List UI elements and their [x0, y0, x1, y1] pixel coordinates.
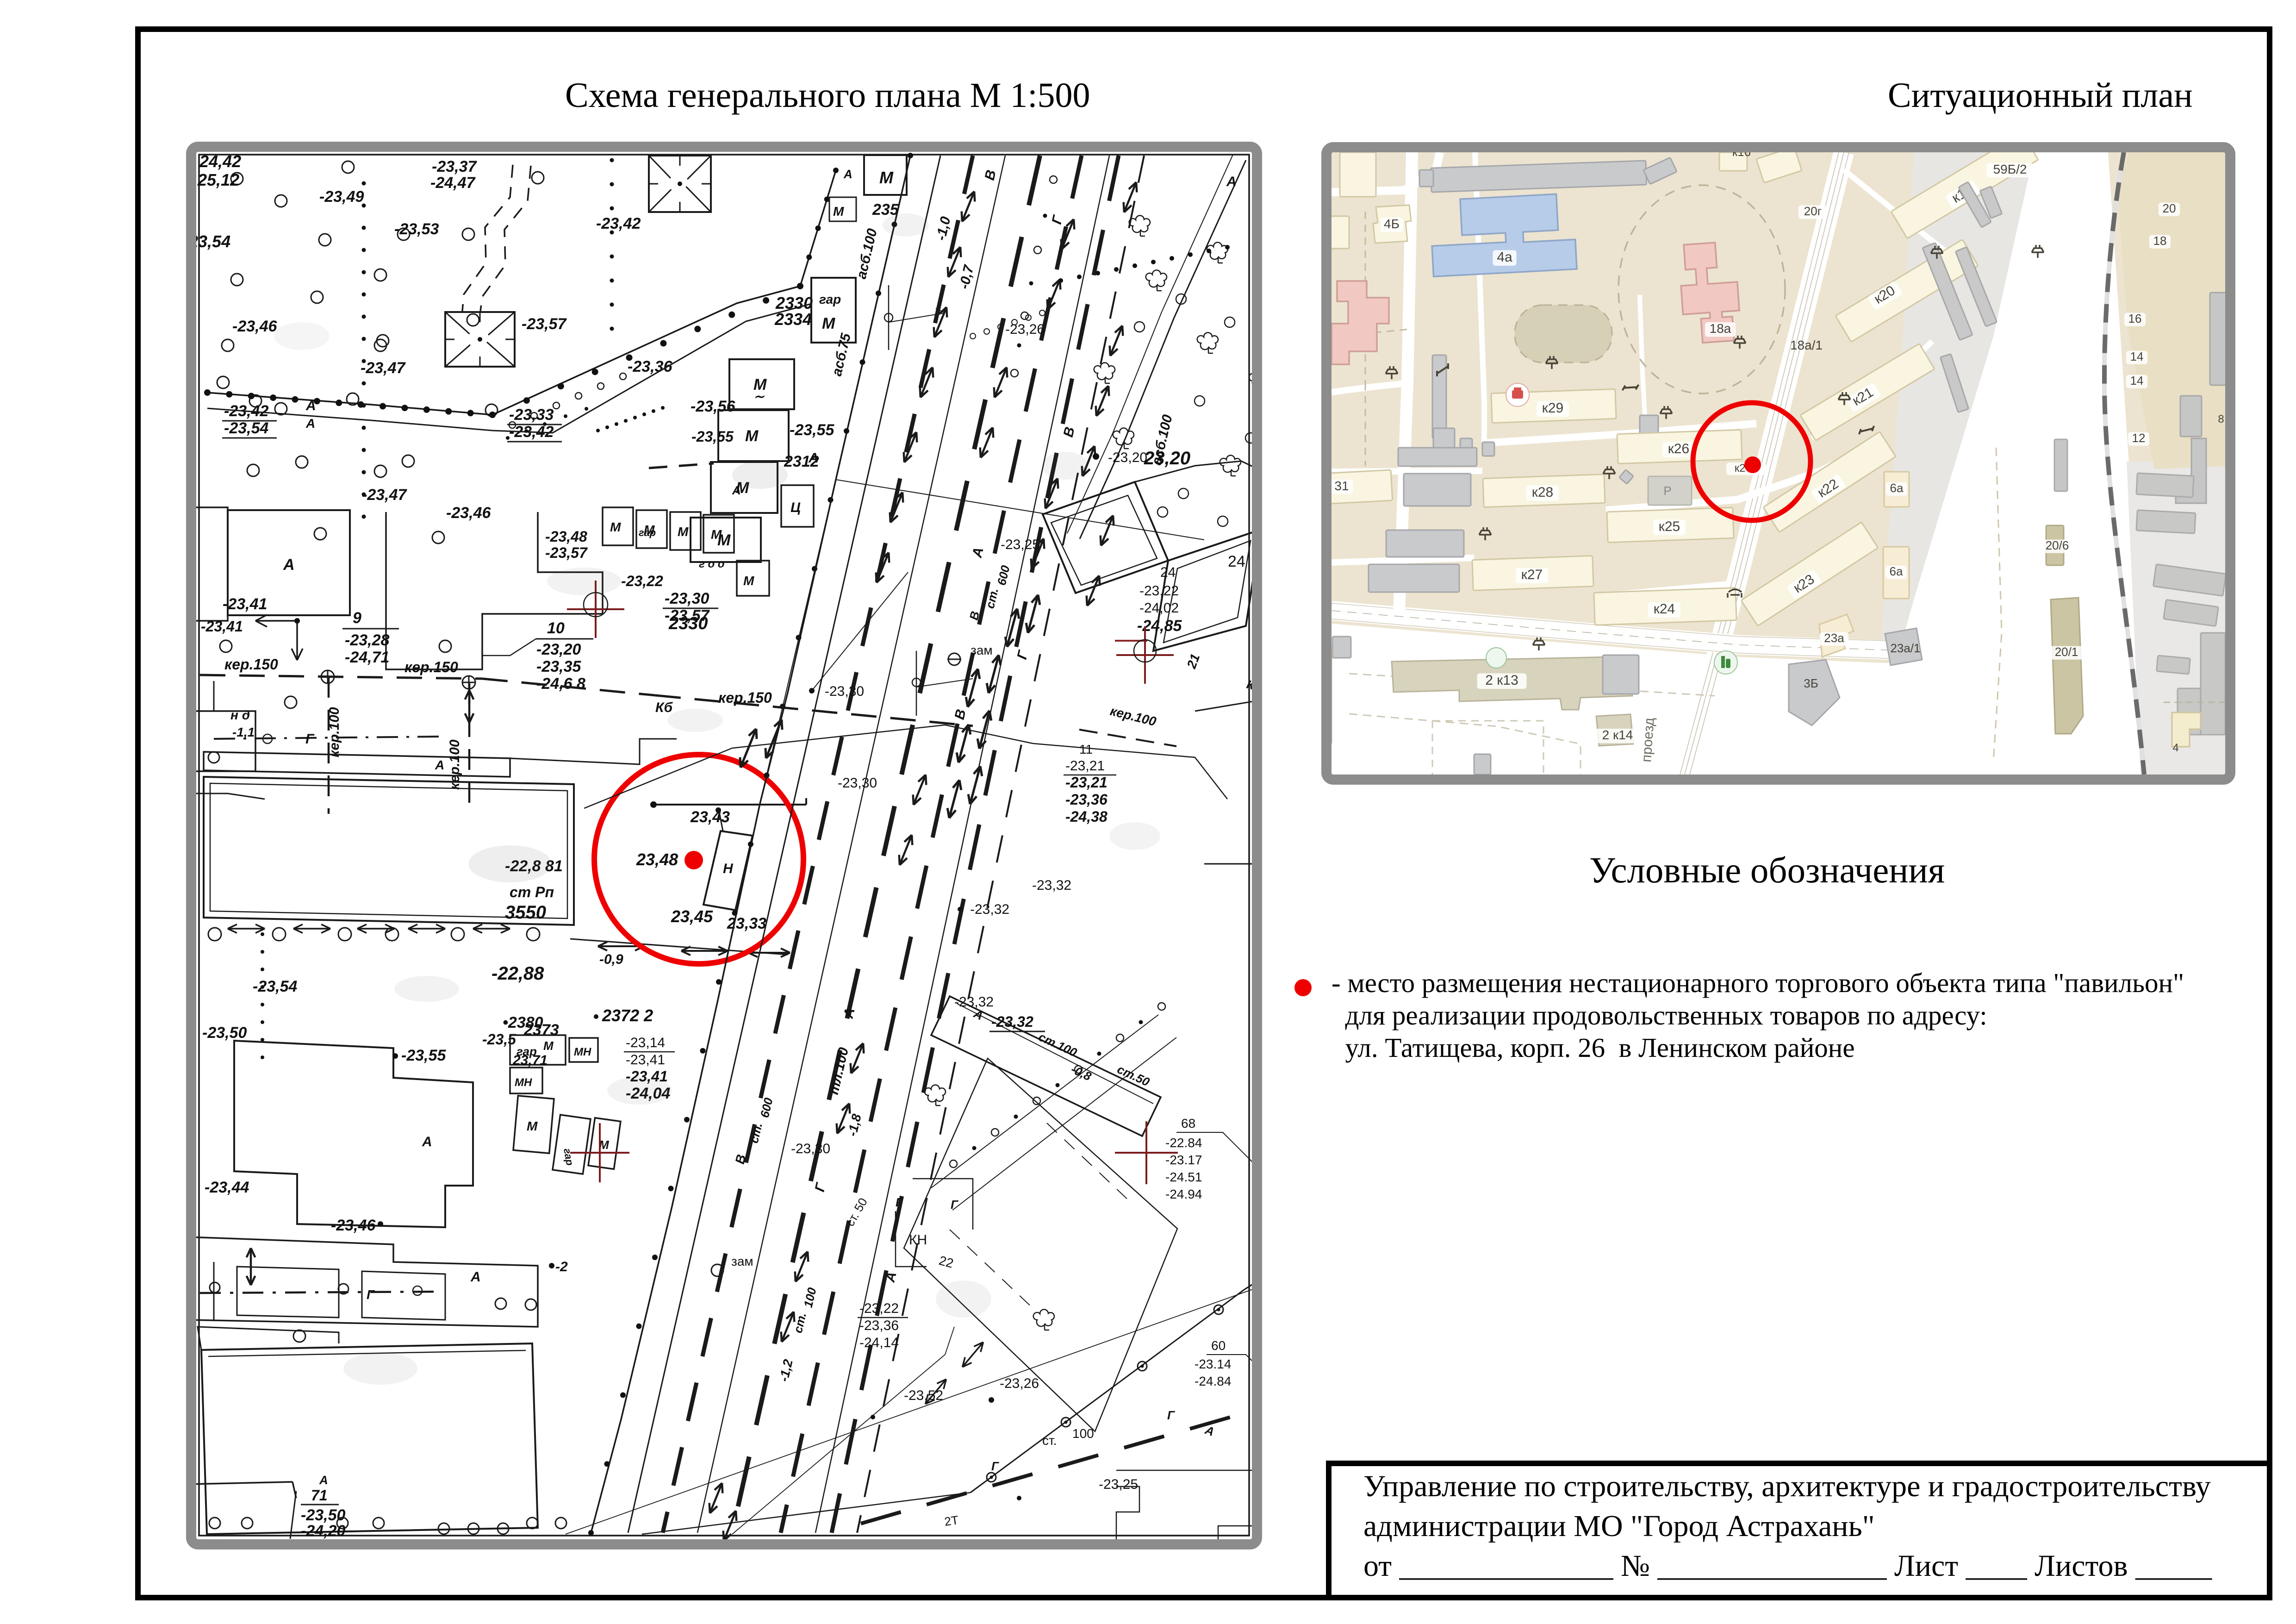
svg-text:31: 31 [1334, 479, 1349, 493]
svg-text:4Б: 4Б [1384, 217, 1400, 231]
svg-text:А: А [1226, 174, 1237, 189]
svg-text:гар: гар [561, 1148, 576, 1167]
svg-text:М: М [743, 574, 754, 588]
svg-text:-24.51: -24.51 [1165, 1170, 1202, 1184]
svg-text:г о о: г о о [699, 558, 724, 570]
svg-text:2330: 2330 [668, 614, 708, 633]
svg-text:-23,49: -23,49 [319, 188, 364, 206]
svg-text:23,45: 23,45 [671, 907, 713, 926]
svg-text:-23,32: -23,32 [954, 994, 994, 1010]
svg-text:к25: к25 [1659, 519, 1680, 534]
svg-text:24,42: 24,42 [199, 152, 241, 171]
svg-text:А: А [843, 167, 852, 181]
svg-text:Г: Г [896, 1195, 903, 1209]
svg-text:Г: Г [991, 1459, 999, 1473]
svg-text:М: М [833, 204, 844, 219]
svg-text:-23,30: -23,30 [665, 590, 709, 607]
svg-text:-24.94: -24.94 [1165, 1187, 1202, 1201]
svg-text:Г: Г [1049, 213, 1066, 226]
svg-text:А: А [435, 758, 444, 772]
svg-text:23,43: 23,43 [690, 808, 730, 826]
svg-text:-24,47: -24,47 [430, 174, 476, 192]
svg-text:-23,54: -23,54 [253, 978, 297, 995]
svg-text:-23,55: -23,55 [401, 1047, 446, 1064]
svg-text:В: В [952, 708, 969, 721]
svg-text:-23,42: -23,42 [596, 215, 641, 232]
svg-text:14: 14 [2130, 350, 2144, 363]
svg-text:-23,22: -23,22 [1139, 583, 1179, 599]
svg-text:А: А [470, 1269, 481, 1285]
svg-text:-1,2: -1,2 [777, 1358, 796, 1383]
svg-text:кер.150: кер.150 [404, 659, 458, 675]
svg-text:-23,55: -23,55 [790, 421, 834, 439]
svg-text:24: 24 [1160, 565, 1176, 580]
svg-text:10: 10 [547, 619, 565, 637]
svg-text:59Б/2: 59Б/2 [1993, 162, 2027, 176]
svg-text:М: М [543, 1039, 554, 1053]
svg-text:11: 11 [1079, 742, 1093, 756]
svg-text:-23,36: -23,36 [1065, 791, 1108, 808]
svg-text:-23,57: -23,57 [545, 544, 588, 561]
svg-text:-23,46: -23,46 [331, 1217, 376, 1234]
svg-text:-0,9: -0,9 [599, 952, 623, 967]
svg-text:кер.100: кер.100 [1109, 704, 1158, 729]
svg-text:зам: зам [971, 643, 993, 657]
svg-text:-23,41: -23,41 [626, 1052, 665, 1068]
svg-text:М: М [678, 525, 689, 539]
svg-text:ст.: ст. [1042, 1433, 1057, 1448]
svg-text:зам: зам [731, 1254, 753, 1268]
svg-text:Г: Г [951, 1198, 958, 1212]
svg-text:к27: к27 [1521, 567, 1543, 582]
svg-text:23,48: 23,48 [636, 850, 678, 869]
svg-text:А: А [808, 450, 819, 466]
svg-text:-1,1: -1,1 [232, 725, 255, 739]
svg-text:-22,88: -22,88 [492, 963, 544, 984]
svg-text:3550: 3550 [505, 902, 546, 923]
svg-text:23а: 23а [1824, 631, 1844, 645]
svg-text:МН: МН [515, 1076, 532, 1089]
svg-text:ст.: ст. [747, 1121, 765, 1144]
svg-text:А: А [422, 1134, 432, 1149]
svg-text:М: М [610, 520, 621, 534]
svg-text:-23,25: -23,25 [1001, 537, 1040, 552]
svg-text:-23,21: -23,21 [1065, 758, 1105, 774]
svg-text:-23,50: -23,50 [202, 1024, 247, 1042]
svg-text:к28: к28 [1532, 485, 1554, 500]
svg-text:60: 60 [1211, 1338, 1226, 1353]
svg-text:-23,22: -23,22 [621, 573, 663, 589]
svg-text:-0,7: -0,7 [957, 263, 977, 291]
svg-text:кер.150: кер.150 [224, 656, 278, 673]
svg-text:КН: КН [909, 1232, 927, 1248]
svg-text:4а: 4а [1497, 250, 1512, 265]
svg-text:-23,48: -23,48 [545, 528, 587, 545]
svg-text:-23,26: -23,26 [1000, 1376, 1039, 1391]
svg-text:-23,30: -23,30 [791, 1141, 830, 1156]
svg-text:А: А [840, 1006, 858, 1020]
svg-text:ст. 50: ст. 50 [843, 1195, 870, 1229]
svg-text:-24,38: -24,38 [1065, 808, 1108, 825]
svg-text:2 к14: 2 к14 [1602, 728, 1633, 742]
svg-text:Кб: Кб [655, 700, 673, 715]
svg-text:2Т: 2Т [944, 1513, 959, 1529]
svg-text:25,12: 25,12 [197, 170, 239, 189]
svg-text:20: 20 [2163, 201, 2176, 215]
svg-text:-23,46: -23,46 [446, 504, 491, 522]
svg-text:68: 68 [1181, 1116, 1195, 1131]
svg-text:-23,37: -23,37 [432, 158, 477, 175]
svg-text:-23,54: -23,54 [224, 419, 268, 437]
svg-text:кер.150: кер.150 [718, 689, 772, 706]
svg-text:-23,28: -23,28 [345, 631, 389, 649]
svg-text:2 к13: 2 к13 [1485, 673, 1518, 688]
svg-text:-24.84: -24.84 [1195, 1374, 1231, 1388]
svg-text:А: А [732, 483, 741, 497]
svg-text:6а: 6а [1890, 481, 1904, 495]
svg-text:В: В [967, 610, 982, 621]
svg-text:А: А [283, 556, 295, 574]
svg-text:к24: к24 [1654, 601, 1675, 617]
svg-text:22: 22 [937, 1253, 955, 1271]
svg-text:-23,32: -23,32 [970, 902, 1009, 917]
svg-text:-23,5: -23,5 [482, 1031, 516, 1048]
svg-text:-23,46: -23,46 [232, 318, 277, 335]
svg-text:20/6: 20/6 [2046, 538, 2069, 552]
svg-text:М: М [745, 427, 759, 445]
svg-text:8: 8 [2218, 413, 2224, 425]
svg-text:600: 600 [758, 1096, 776, 1119]
svg-text:-24,71: -24,71 [345, 649, 389, 666]
svg-text:23,20: 23,20 [1144, 448, 1190, 468]
svg-text:-2: -2 [555, 1259, 568, 1274]
svg-text:20г: 20г [1804, 204, 1822, 218]
svg-text:Г: Г [1014, 649, 1032, 661]
svg-text:Г: Г [1167, 1408, 1175, 1422]
svg-text:проезд: проезд [1639, 717, 1657, 762]
svg-text:асб.100: асб.100 [854, 227, 880, 280]
svg-text:12: 12 [2132, 431, 2146, 445]
svg-text:-23,21: -23,21 [1065, 774, 1108, 791]
svg-text:М: М [879, 168, 894, 187]
svg-text:-24,02: -24,02 [1139, 600, 1179, 616]
svg-text:В: В [982, 169, 999, 182]
svg-text:гар: гар [639, 527, 656, 538]
svg-text:-23,41: -23,41 [223, 595, 267, 613]
svg-text:-1,0: -1,0 [933, 215, 954, 242]
svg-text:Н: Н [723, 861, 734, 876]
svg-text:∼: ∼ [753, 389, 765, 404]
svg-text:асб.75: асб.75 [829, 331, 854, 378]
svg-text:-23,41: -23,41 [201, 618, 243, 635]
svg-text:-1,8: -1,8 [845, 1112, 864, 1137]
svg-text:-23,25: -23,25 [1099, 1477, 1138, 1492]
svg-text:-23,26: -23,26 [1005, 322, 1045, 337]
svg-text:А: А [305, 416, 315, 431]
svg-text:3Б: 3Б [1804, 676, 1818, 690]
svg-text:-23,35: -23,35 [536, 658, 581, 675]
svg-text:МН: МН [574, 1046, 591, 1058]
svg-text:23,54: 23,54 [196, 232, 230, 251]
svg-text:-23.17: -23.17 [1165, 1153, 1202, 1167]
svg-text:-23,55: -23,55 [691, 428, 734, 445]
svg-text:А: А [969, 546, 986, 560]
svg-text:-23,50: -23,50 [301, 1506, 345, 1524]
svg-text:23а/1: 23а/1 [1890, 641, 1920, 655]
svg-text:-23,36: -23,36 [628, 358, 672, 375]
svg-text:-23,57: -23,57 [522, 315, 567, 333]
svg-text:9: 9 [353, 609, 361, 627]
svg-text:М: М [527, 1119, 538, 1133]
svg-text:-24,85: -24,85 [1137, 617, 1182, 635]
svg-text:-24,14: -24,14 [859, 1335, 899, 1350]
svg-text:н д: н д [230, 708, 250, 722]
svg-text:16: 16 [2128, 312, 2142, 325]
svg-text:-24,20: -24,20 [301, 1522, 345, 1539]
svg-text:24: 24 [1228, 553, 1245, 570]
svg-text:-23,53: -23,53 [394, 220, 439, 238]
svg-text:к16: к16 [1732, 152, 1751, 159]
svg-text:А: А [319, 1473, 328, 1487]
svg-text:-23,44: -23,44 [205, 1179, 249, 1196]
svg-text:20/1: 20/1 [2055, 645, 2078, 659]
svg-text:2372 2: 2372 2 [602, 1006, 653, 1025]
svg-text:-23,30: -23,30 [825, 684, 864, 699]
svg-text:-23,14: -23,14 [626, 1035, 665, 1050]
svg-text:21: 21 [1184, 652, 1202, 671]
svg-text:-23,36: -23,36 [859, 1318, 899, 1333]
svg-text:18а/1: 18а/1 [1790, 338, 1823, 352]
svg-text:•2380: •2380 [503, 1014, 543, 1031]
svg-text:Р: Р [1663, 484, 1671, 498]
svg-text:Г: Г [305, 731, 315, 747]
svg-text:-23,32: -23,32 [991, 1013, 1033, 1030]
svg-text:ст Рп: ст Рп [510, 884, 554, 900]
svg-text:-23,20: -23,20 [1108, 450, 1147, 465]
svg-text:к29: к29 [1542, 400, 1564, 416]
svg-text:-23,47: -23,47 [361, 359, 406, 377]
svg-text:-23,47: -23,47 [362, 486, 407, 504]
svg-text:тл.100: тл.100 [826, 1046, 852, 1096]
svg-text:-23,22: -23,22 [859, 1301, 899, 1316]
svg-text:М: М [822, 315, 835, 332]
svg-text:кер.100: кер.100 [327, 707, 342, 757]
svg-text:6а: 6а [1890, 564, 1903, 578]
svg-text:71: 71 [311, 1487, 328, 1504]
svg-text:18а: 18а [1710, 321, 1731, 336]
svg-text:-23,30: -23,30 [838, 775, 877, 791]
svg-text:-23,32: -23,32 [1032, 878, 1071, 893]
svg-text:100: 100 [801, 1286, 819, 1309]
svg-text:гар: гар [819, 292, 841, 306]
svg-text:-22.84: -22.84 [1165, 1136, 1202, 1150]
svg-text:к26: к26 [1668, 441, 1690, 456]
svg-text:23,71: 23,71 [512, 1053, 548, 1068]
svg-text:14: 14 [2130, 374, 2144, 387]
svg-text:М: М [711, 527, 722, 542]
svg-text:600: 600 [995, 564, 1013, 587]
svg-text:Ц: Ц [790, 500, 801, 515]
svg-text:4: 4 [2172, 742, 2178, 754]
svg-text:18: 18 [2153, 234, 2167, 248]
svg-text:-23,20: -23,20 [536, 641, 581, 658]
svg-text:100: 100 [1072, 1426, 1094, 1441]
svg-text:ст.50: ст.50 [1115, 1062, 1152, 1089]
svg-text:-23.14: -23.14 [1195, 1357, 1231, 1371]
svg-text:Г: Г [367, 1287, 375, 1302]
svg-text:Г: Г [812, 1181, 829, 1193]
svg-text:В: В [1061, 425, 1078, 439]
